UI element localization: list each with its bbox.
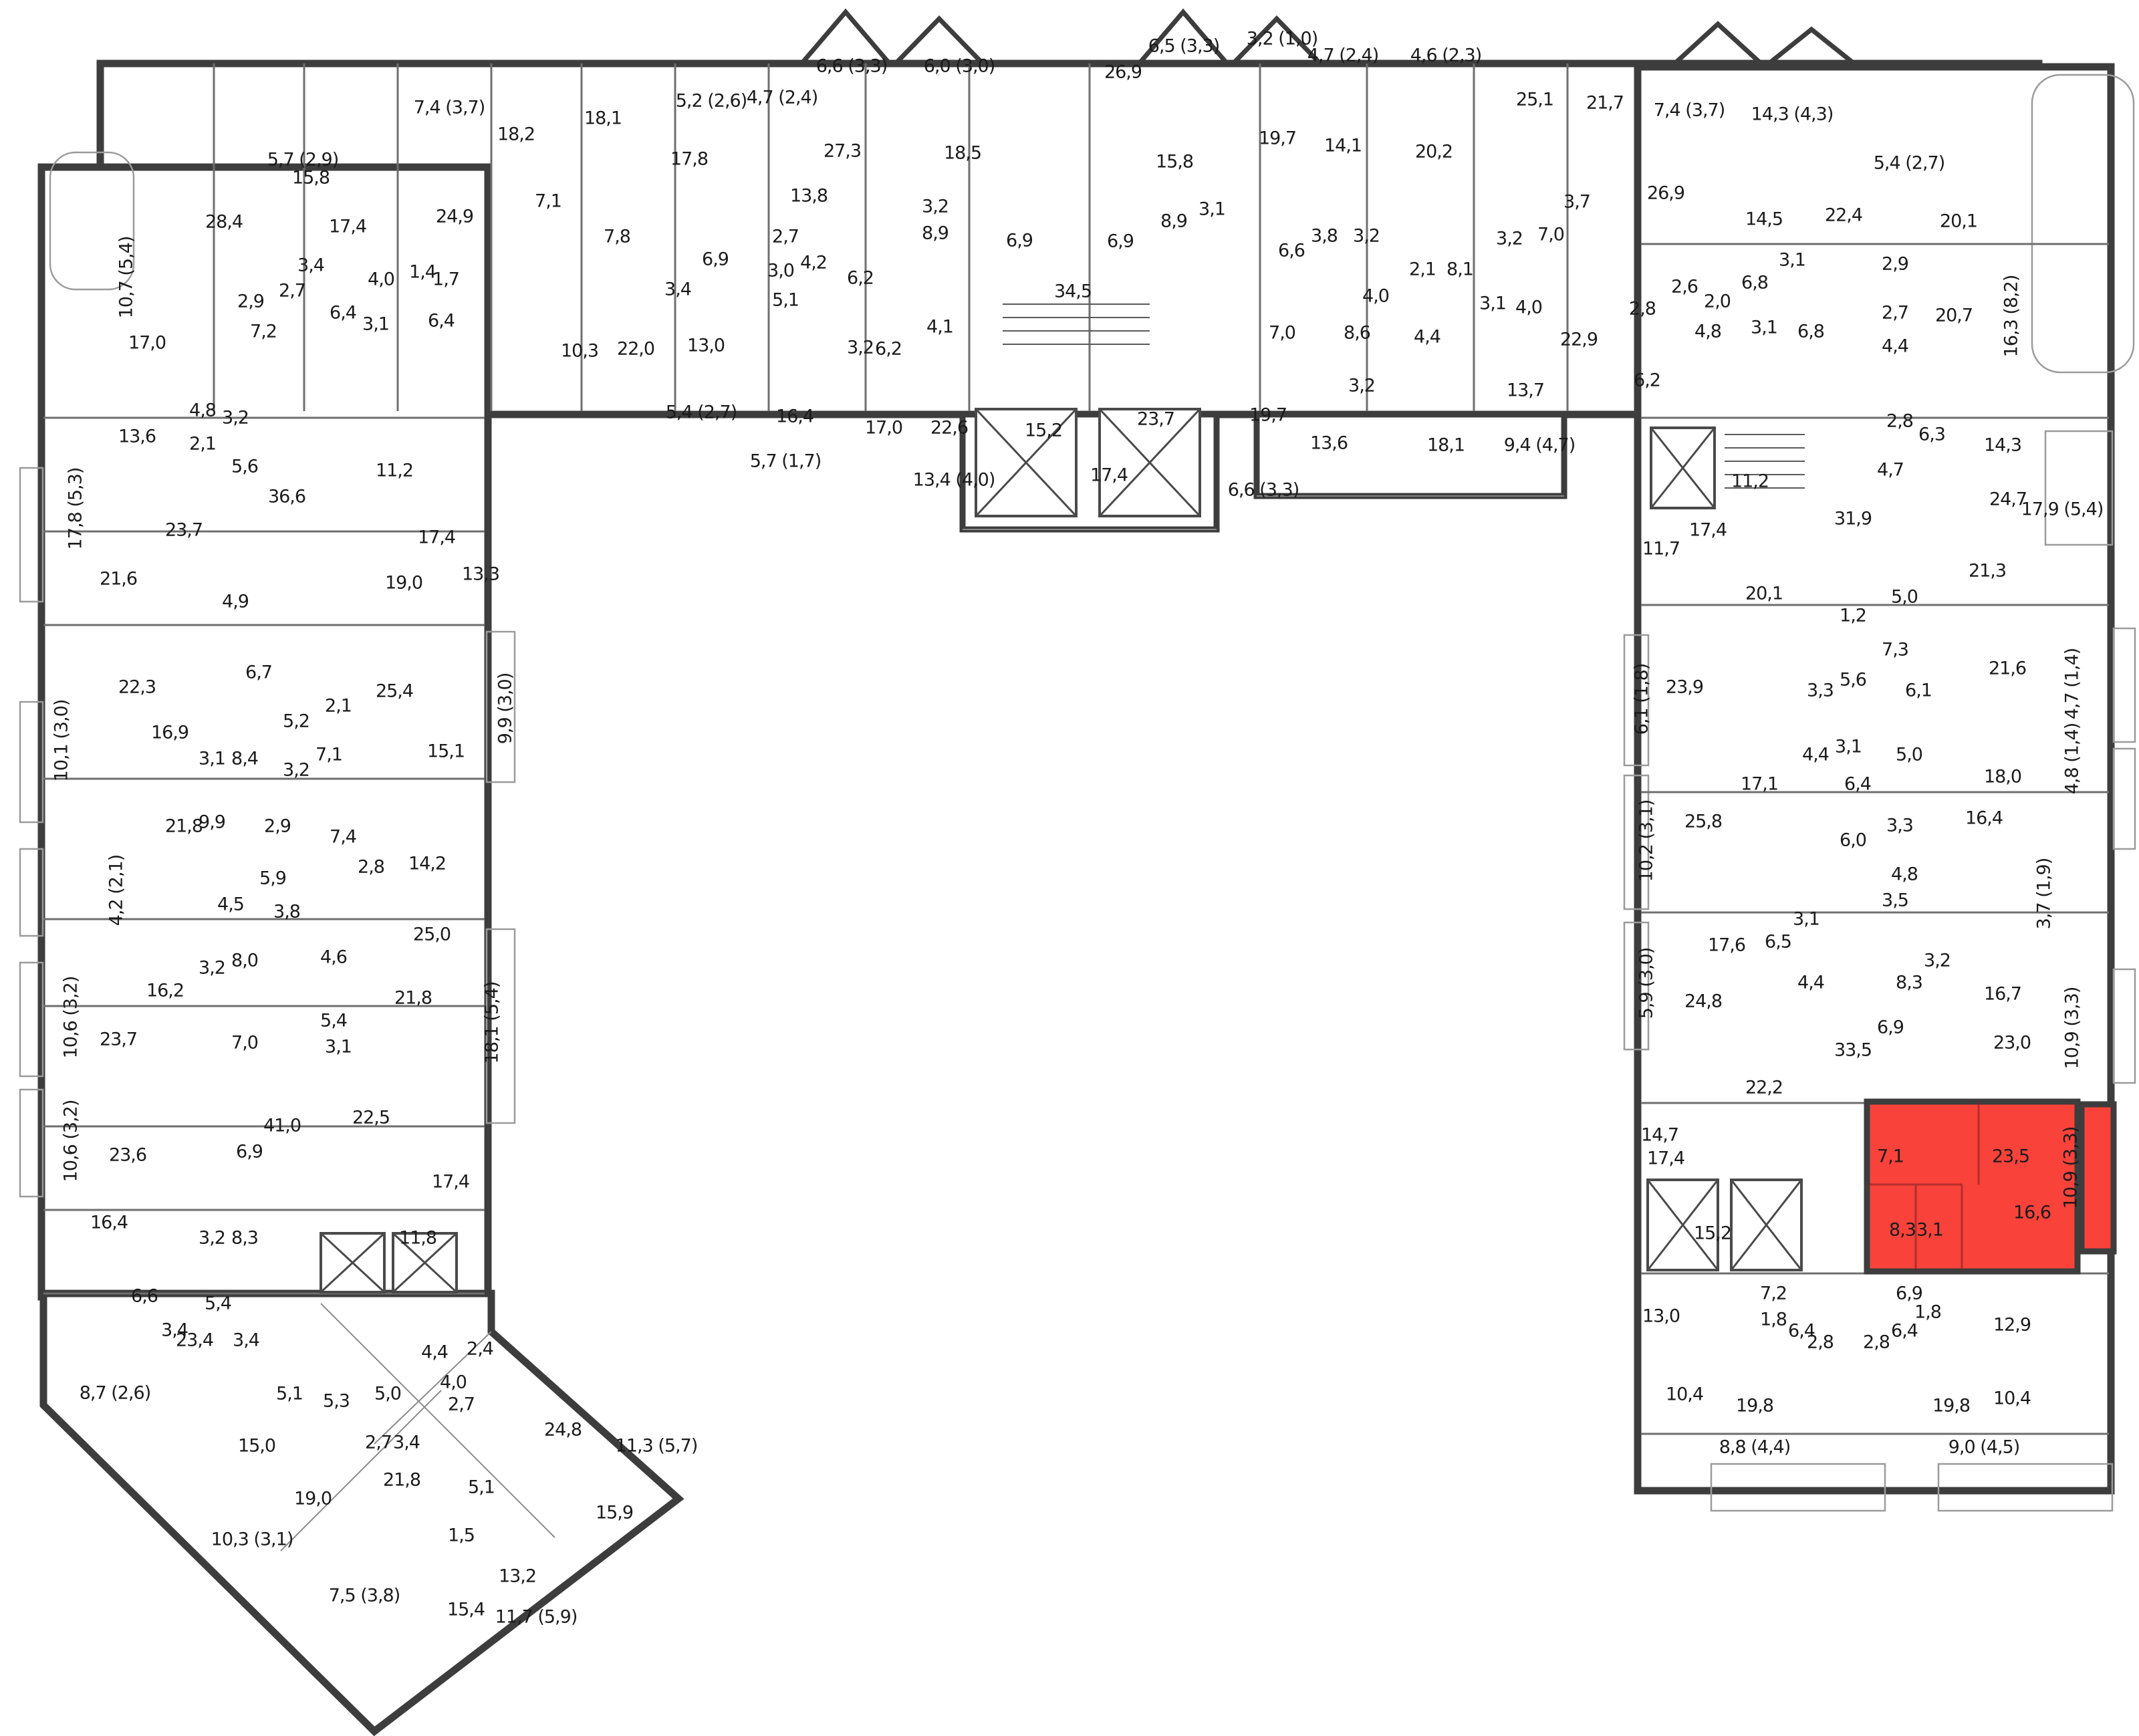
area-label: 15,2 xyxy=(1025,420,1062,441)
area-label: 3,1 xyxy=(199,749,225,769)
area-label: 10,1 (3,0) xyxy=(51,700,72,782)
area-label: 23,7 xyxy=(165,520,203,541)
area-label: 7,2 xyxy=(250,322,277,342)
area-label: 4,4 xyxy=(1802,745,1829,765)
area-label: 19,8 xyxy=(1736,1396,1773,1416)
area-label: 10,4 xyxy=(1666,1384,1703,1405)
area-label: 15,2 xyxy=(1694,1223,1731,1244)
area-label: 3,2 xyxy=(199,1228,225,1249)
area-label: 17,4 xyxy=(329,217,366,237)
area-label: 21,6 xyxy=(1989,658,2026,679)
area-label: 7,2 xyxy=(1760,1283,1787,1304)
area-label: 3,2 xyxy=(222,408,249,428)
area-label: 9,4 (4,7) xyxy=(1504,435,1576,456)
area-label: 10,3 xyxy=(561,341,598,362)
area-label: 23,6 xyxy=(109,1145,146,1166)
area-label: 2,9 xyxy=(237,291,264,312)
area-label: 22,2 xyxy=(1745,1078,1783,1098)
area-label: 5,0 xyxy=(1891,587,1918,608)
area-label: 3,4 xyxy=(393,1433,420,1453)
area-label: 5,9 xyxy=(259,868,286,889)
area-label: 16,4 xyxy=(776,406,813,427)
right-wing xyxy=(1638,67,2111,1491)
area-label: 5,0 xyxy=(374,1384,401,1404)
area-label: 8,9 xyxy=(922,223,949,244)
area-label: 17,8 (5,3) xyxy=(66,468,86,550)
highlighted-apartment-body[interactable] xyxy=(1867,1102,2078,1271)
area-label: 4,8 xyxy=(189,400,216,421)
area-label: 3,8 xyxy=(273,902,300,922)
area-label: 6,4 xyxy=(330,303,356,324)
area-label: 5,4 (2,7) xyxy=(666,402,737,423)
area-label: 17,6 xyxy=(1708,935,1745,956)
area-label: 25,0 xyxy=(413,924,451,945)
area-label: 22,6 xyxy=(930,418,968,439)
area-label: 11,2 xyxy=(1731,471,1769,492)
area-label: 19,0 xyxy=(294,1489,332,1509)
area-label: 33,5 xyxy=(1834,1040,1872,1061)
area-label: 31,9 xyxy=(1834,509,1872,529)
area-label: 4,5 xyxy=(217,894,244,915)
area-label: 6,6 (3,3) xyxy=(1228,480,1299,501)
area-label: 2,9 xyxy=(264,816,291,837)
area-label: 9,9 xyxy=(199,812,225,833)
area-label: 11,7 (5,9) xyxy=(495,1607,578,1628)
area-label: 25,8 xyxy=(1684,812,1722,832)
area-label: 23,0 xyxy=(1993,1033,2031,1053)
area-label: 13,0 xyxy=(1642,1306,1680,1327)
area-label: 3,2 xyxy=(922,197,949,217)
area-label: 3,4 xyxy=(233,1330,259,1351)
area-label: 7,1 xyxy=(535,191,561,212)
area-label: 16,3 (8,2) xyxy=(2001,275,2022,358)
area-label: 4,7 (2,4) xyxy=(747,88,818,108)
area-label: 5,4 (2,7) xyxy=(1874,153,1945,174)
area-label: 23,7 xyxy=(100,1029,137,1050)
area-label: 3,2 xyxy=(1924,951,1951,971)
floor-plan-drawing: 5,7 (2,9)7,4 (3,7)15,828,417,424,910,7 (… xyxy=(0,0,2139,1736)
area-label: 21,3 xyxy=(1969,561,2006,582)
area-label: 22,3 xyxy=(118,677,156,698)
area-label: 21,8 xyxy=(394,988,432,1009)
area-label: 21,7 xyxy=(1586,93,1624,114)
area-label: 3,1 xyxy=(1199,199,1225,220)
area-label: 4,1 xyxy=(926,317,953,338)
area-label: 22,5 xyxy=(352,1108,390,1128)
area-label: 14,3 xyxy=(1984,435,2021,456)
area-label: 4,6 xyxy=(320,947,347,968)
area-label: 13,6 xyxy=(118,426,156,447)
area-label: 3,1 xyxy=(1835,737,1862,757)
balcony-outline xyxy=(2114,628,2135,742)
area-label: 6,5 (3,3) xyxy=(1148,36,1220,57)
area-label: 2,0 xyxy=(1704,291,1731,312)
area-label: 21,6 xyxy=(100,569,137,590)
area-label: 17,0 xyxy=(865,418,902,439)
area-label: 6,2 xyxy=(847,268,874,289)
area-label: 10,6 (3,2) xyxy=(61,1100,82,1183)
area-label: 4,0 xyxy=(1362,286,1389,307)
area-label: 13,0 xyxy=(687,336,725,356)
area-label: 26,9 xyxy=(1104,62,1142,83)
area-label: 2,6 xyxy=(1671,277,1698,297)
area-label: 4,8 xyxy=(1891,864,1918,885)
area-label: 17,4 xyxy=(1689,520,1727,541)
area-label: 10,2 (3,1) xyxy=(1636,800,1657,882)
area-label: 17,0 xyxy=(128,333,166,354)
area-label: 6,2 xyxy=(875,339,902,360)
area-label: 2,7 xyxy=(279,281,305,301)
diagonal-wing xyxy=(43,1293,678,1731)
area-label: 6,4 xyxy=(428,311,455,332)
area-label: 16,7 xyxy=(1984,984,2021,1005)
area-label: 4,8 xyxy=(1694,322,1721,342)
area-label: 17,1 xyxy=(1741,774,1778,795)
area-label: 15,4 xyxy=(447,1600,485,1620)
area-label: 3,1 xyxy=(1779,250,1805,271)
area-label: 13,7 xyxy=(1507,380,1544,401)
area-label: 18,1 xyxy=(584,108,622,129)
area-label: 18,1 (5,4) xyxy=(482,982,503,1064)
highlighted-apartment-balcony[interactable] xyxy=(2082,1104,2114,1251)
area-label: 23,4 xyxy=(176,1330,213,1351)
area-label: 26,9 xyxy=(1647,183,1684,204)
area-label: 5,4 xyxy=(320,1011,347,1031)
area-label: 6,9 xyxy=(1877,1017,1904,1038)
area-label: 6,0 xyxy=(1840,830,1866,851)
area-label: 5,9 (3,0) xyxy=(1636,948,1657,1019)
area-label: 23,9 xyxy=(1666,677,1703,698)
area-label: 5,3 xyxy=(323,1391,350,1412)
area-label: 5,2 (2,6) xyxy=(676,91,747,112)
area-label: 41,0 xyxy=(263,1116,301,1136)
area-label: 22,4 xyxy=(1825,205,1862,226)
area-label: 19,8 xyxy=(1932,1396,1970,1416)
area-label: 10,7 (5,4) xyxy=(116,237,137,319)
area-label: 4,2 xyxy=(800,253,827,273)
area-label: 14,1 xyxy=(1324,136,1362,156)
area-label: 6,8 xyxy=(1797,322,1824,342)
area-label: 28,4 xyxy=(205,212,243,233)
area-label: 2,7 xyxy=(772,227,799,247)
area-label: 22,9 xyxy=(1560,330,1598,350)
area-label: 6,6 xyxy=(131,1286,158,1307)
area-label: 6,4 xyxy=(1891,1321,1918,1342)
balcony-outline xyxy=(2114,749,2135,849)
area-label: 19,7 xyxy=(1259,128,1296,149)
area-label: 7,3 xyxy=(1882,640,1908,660)
area-label: 4,9 xyxy=(222,592,249,612)
area-label: 10,3 (3,1) xyxy=(211,1529,293,1550)
area-label: 5,1 xyxy=(772,290,799,311)
area-label: 13,2 xyxy=(499,1566,536,1587)
area-label: 6,9 xyxy=(236,1142,263,1162)
area-label: 6,1 (1,8) xyxy=(1632,664,1652,735)
area-label: 15,9 xyxy=(596,1503,633,1523)
area-label: 12,9 xyxy=(1993,1315,2031,1336)
area-label: 3,1 xyxy=(1793,909,1819,930)
area-label: 21,8 xyxy=(383,1470,420,1491)
area-label: 20,7 xyxy=(1935,305,1973,326)
area-label: 8,3 xyxy=(231,1228,258,1249)
area-label: 1,8 xyxy=(1760,1310,1787,1330)
area-label: 2,1 xyxy=(189,434,216,455)
area-label: 3,3 xyxy=(1807,680,1834,701)
area-label: 16,4 xyxy=(90,1213,128,1233)
area-label: 1,2 xyxy=(1840,606,1866,626)
area-label: 13,6 xyxy=(1310,433,1348,454)
area-label: 19,0 xyxy=(385,573,422,594)
area-label: 23,5 xyxy=(1992,1146,2029,1167)
area-label: 3,1 xyxy=(325,1037,352,1058)
area-label: 4,4 xyxy=(421,1342,448,1363)
area-label: 3,2 xyxy=(1353,226,1380,247)
area-label: 16,9 xyxy=(151,723,188,743)
area-label: 1,5 xyxy=(448,1525,475,1546)
area-label: 6,2 xyxy=(1634,370,1660,391)
area-label: 4,2 (2,1) xyxy=(106,855,127,926)
area-label: 3,2 xyxy=(847,338,874,358)
area-label: 34,5 xyxy=(1054,281,1092,302)
area-label: 4,8 (1,4) xyxy=(2062,723,2083,795)
area-label: 11,8 xyxy=(399,1228,436,1249)
area-label: 6,6 xyxy=(1278,241,1305,261)
area-label: 5,2 xyxy=(283,711,309,732)
area-label: 6,3 xyxy=(1918,424,1945,445)
area-label: 11,3 (5,7) xyxy=(616,1436,698,1457)
area-label: 25,4 xyxy=(376,681,413,702)
area-label: 11,2 xyxy=(376,461,413,481)
area-label: 13,8 xyxy=(790,186,828,207)
area-label: 3,2 xyxy=(199,958,225,979)
area-label: 2,8 xyxy=(1863,1332,1890,1353)
area-label: 8,8 (4,4) xyxy=(1719,1437,1791,1458)
area-label: 7,8 xyxy=(604,227,630,247)
area-label: 6,4 xyxy=(1844,774,1871,795)
area-label: 3,2 xyxy=(1348,376,1375,396)
area-label: 2,4 xyxy=(467,1339,493,1360)
area-label: 17,4 xyxy=(1090,465,1128,486)
area-label: 3,3 xyxy=(1886,816,1913,836)
area-label: 5,0 xyxy=(1896,745,1922,765)
floor-plan-page: 5,7 (2,9)7,4 (3,7)15,828,417,424,910,7 (… xyxy=(0,0,2139,1736)
area-label: 4,4 xyxy=(1882,336,1908,357)
area-label: 2,8 xyxy=(1886,411,1913,432)
area-label: 7,1 xyxy=(316,745,342,765)
area-label: 18,1 xyxy=(1427,435,1465,456)
area-label: 5,1 xyxy=(468,1477,495,1498)
area-label: 2,8 xyxy=(1807,1332,1834,1353)
area-label: 3,8 xyxy=(1311,226,1338,247)
area-label: 6,1 xyxy=(1905,680,1932,701)
area-label: 15,1 xyxy=(427,741,465,762)
area-label: 3,7 (1,9) xyxy=(2034,858,2055,930)
area-label: 13,3 xyxy=(462,564,499,585)
area-label: 10,9 (3,3) xyxy=(2062,987,2083,1070)
area-label: 4,0 xyxy=(1515,297,1542,318)
area-label: 2,7 xyxy=(1882,303,1908,324)
area-label: 22,0 xyxy=(617,339,654,360)
area-label: 4,7 xyxy=(1877,460,1904,481)
area-label: 7,0 xyxy=(1537,225,1564,245)
area-label: 2,7 xyxy=(365,1433,392,1453)
area-label: 8,3 xyxy=(1889,1220,1916,1241)
area-label: 6,9 xyxy=(702,249,729,270)
area-label: 3,0 xyxy=(767,261,794,281)
area-label: 9,0 (4,5) xyxy=(1948,1437,2020,1458)
area-label: 24,8 xyxy=(1684,991,1722,1012)
area-label: 10,9 (3,3) xyxy=(2061,1127,2082,1209)
area-label: 7,4 (3,7) xyxy=(1654,100,1725,121)
area-label: 20,1 xyxy=(1940,211,1977,232)
area-label: 3,5 xyxy=(1882,890,1908,911)
area-label: 3,1 xyxy=(1479,293,1506,314)
area-label: 3,7 xyxy=(1563,192,1590,213)
area-label: 7,5 (3,8) xyxy=(329,1586,400,1606)
area-label: 16,2 xyxy=(146,981,184,1001)
area-label: 8,0 xyxy=(231,951,258,971)
area-label: 3,2 xyxy=(1496,229,1523,249)
area-label: 14,7 xyxy=(1641,1125,1678,1146)
area-label: 6,6 (3,3) xyxy=(816,56,888,77)
area-label: 2,1 xyxy=(325,696,352,717)
area-label: 5,6 xyxy=(1840,670,1866,691)
area-label: 7,1 xyxy=(1877,1146,1904,1167)
area-label: 6,5 xyxy=(1765,932,1791,953)
area-label: 2,8 xyxy=(1629,299,1656,320)
area-label: 16,6 xyxy=(2013,1203,2051,1223)
area-label: 4,7 (1,4) xyxy=(2062,648,2083,720)
area-label: 8,9 xyxy=(1160,211,1187,232)
area-label: 3,4 xyxy=(664,279,691,300)
area-label: 3,2 xyxy=(283,760,309,781)
area-label: 8,4 xyxy=(231,749,258,769)
area-label: 10,6 (3,2) xyxy=(61,977,82,1059)
area-label: 17,4 xyxy=(418,527,455,548)
area-label: 16,4 xyxy=(1965,808,2003,829)
area-label: 36,6 xyxy=(268,487,305,507)
area-label: 5,4 xyxy=(205,1293,231,1314)
area-label: 24,8 xyxy=(544,1420,582,1441)
area-label: 6,8 xyxy=(1741,273,1768,293)
area-label: 5,7 (1,7) xyxy=(750,451,822,472)
area-label: 14,2 xyxy=(408,854,446,874)
area-label: 7,0 xyxy=(231,1033,258,1053)
area-label: 17,8 xyxy=(670,149,708,170)
area-label: 15,8 xyxy=(1156,152,1193,172)
area-label: 1,8 xyxy=(1914,1302,1941,1323)
area-label: 2,8 xyxy=(358,857,384,878)
area-label: 18,0 xyxy=(1984,767,2021,787)
area-label: 14,5 xyxy=(1745,209,1783,230)
area-label: 3,1 xyxy=(362,314,389,335)
area-label: 6,7 xyxy=(245,662,272,683)
area-label: 9,9 (3,0) xyxy=(495,673,516,745)
area-label: 6,9 xyxy=(1006,231,1033,251)
area-label: 8,7 (2,6) xyxy=(80,1383,151,1404)
area-label: 2,1 xyxy=(1409,259,1436,280)
area-label: 4,7 (2,4) xyxy=(1307,45,1379,66)
area-label: 4,4 xyxy=(1797,973,1824,993)
area-label: 6,0 (3,0) xyxy=(924,56,995,77)
area-label: 2,9 xyxy=(1882,254,1908,275)
area-label: 5,1 xyxy=(276,1384,303,1404)
area-label: 8,1 xyxy=(1446,259,1473,280)
area-label: 1,4 xyxy=(409,262,436,283)
area-label: 13,4 (4,0) xyxy=(913,470,995,491)
area-label: 6,9 xyxy=(1107,231,1134,252)
area-label: 8,6 xyxy=(1344,323,1370,344)
area-label: 7,4 (3,7) xyxy=(414,98,485,118)
area-label: 20,2 xyxy=(1415,142,1453,162)
area-label: 18,5 xyxy=(944,143,981,164)
area-label: 1,7 xyxy=(432,269,459,290)
area-label: 8,3 xyxy=(1896,973,1922,993)
area-label: 24,9 xyxy=(436,207,473,227)
area-label: 7,4 xyxy=(330,827,356,848)
area-label: 23,7 xyxy=(1137,409,1174,430)
area-label: 17,4 xyxy=(432,1172,469,1193)
area-label: 27,3 xyxy=(824,141,861,162)
area-label: 3,4 xyxy=(297,255,324,276)
area-label: 19,7 xyxy=(1249,405,1287,426)
area-label: 25,1 xyxy=(1516,90,1553,110)
area-label: 4,0 xyxy=(368,269,394,290)
area-label: 15,8 xyxy=(292,168,330,189)
area-label: 14,3 (4,3) xyxy=(1751,104,1834,125)
area-label: 4,6 (2,3) xyxy=(1410,45,1482,66)
area-label: 3,1 xyxy=(1751,318,1777,338)
balcony-outline xyxy=(2114,969,2135,1083)
area-label: 11,7 xyxy=(1642,539,1680,560)
area-label: 17,9 (5,4) xyxy=(2021,499,2104,520)
area-label: 4,4 xyxy=(1414,327,1440,348)
area-label: 2,7 xyxy=(448,1394,475,1415)
area-label: 21,8 xyxy=(165,816,203,837)
area-label: 17,4 xyxy=(1647,1148,1684,1169)
area-label: 15,0 xyxy=(238,1436,275,1457)
area-label: 4,0 xyxy=(440,1372,467,1393)
area-label: 7,0 xyxy=(1269,323,1295,344)
area-label: 5,6 xyxy=(231,457,258,477)
area-label: 6,9 xyxy=(1896,1283,1922,1304)
area-label: 3,1 xyxy=(1916,1220,1943,1241)
area-label: 10,4 xyxy=(1993,1388,2031,1409)
area-label: 18,2 xyxy=(497,124,535,145)
area-label: 20,1 xyxy=(1745,584,1783,604)
